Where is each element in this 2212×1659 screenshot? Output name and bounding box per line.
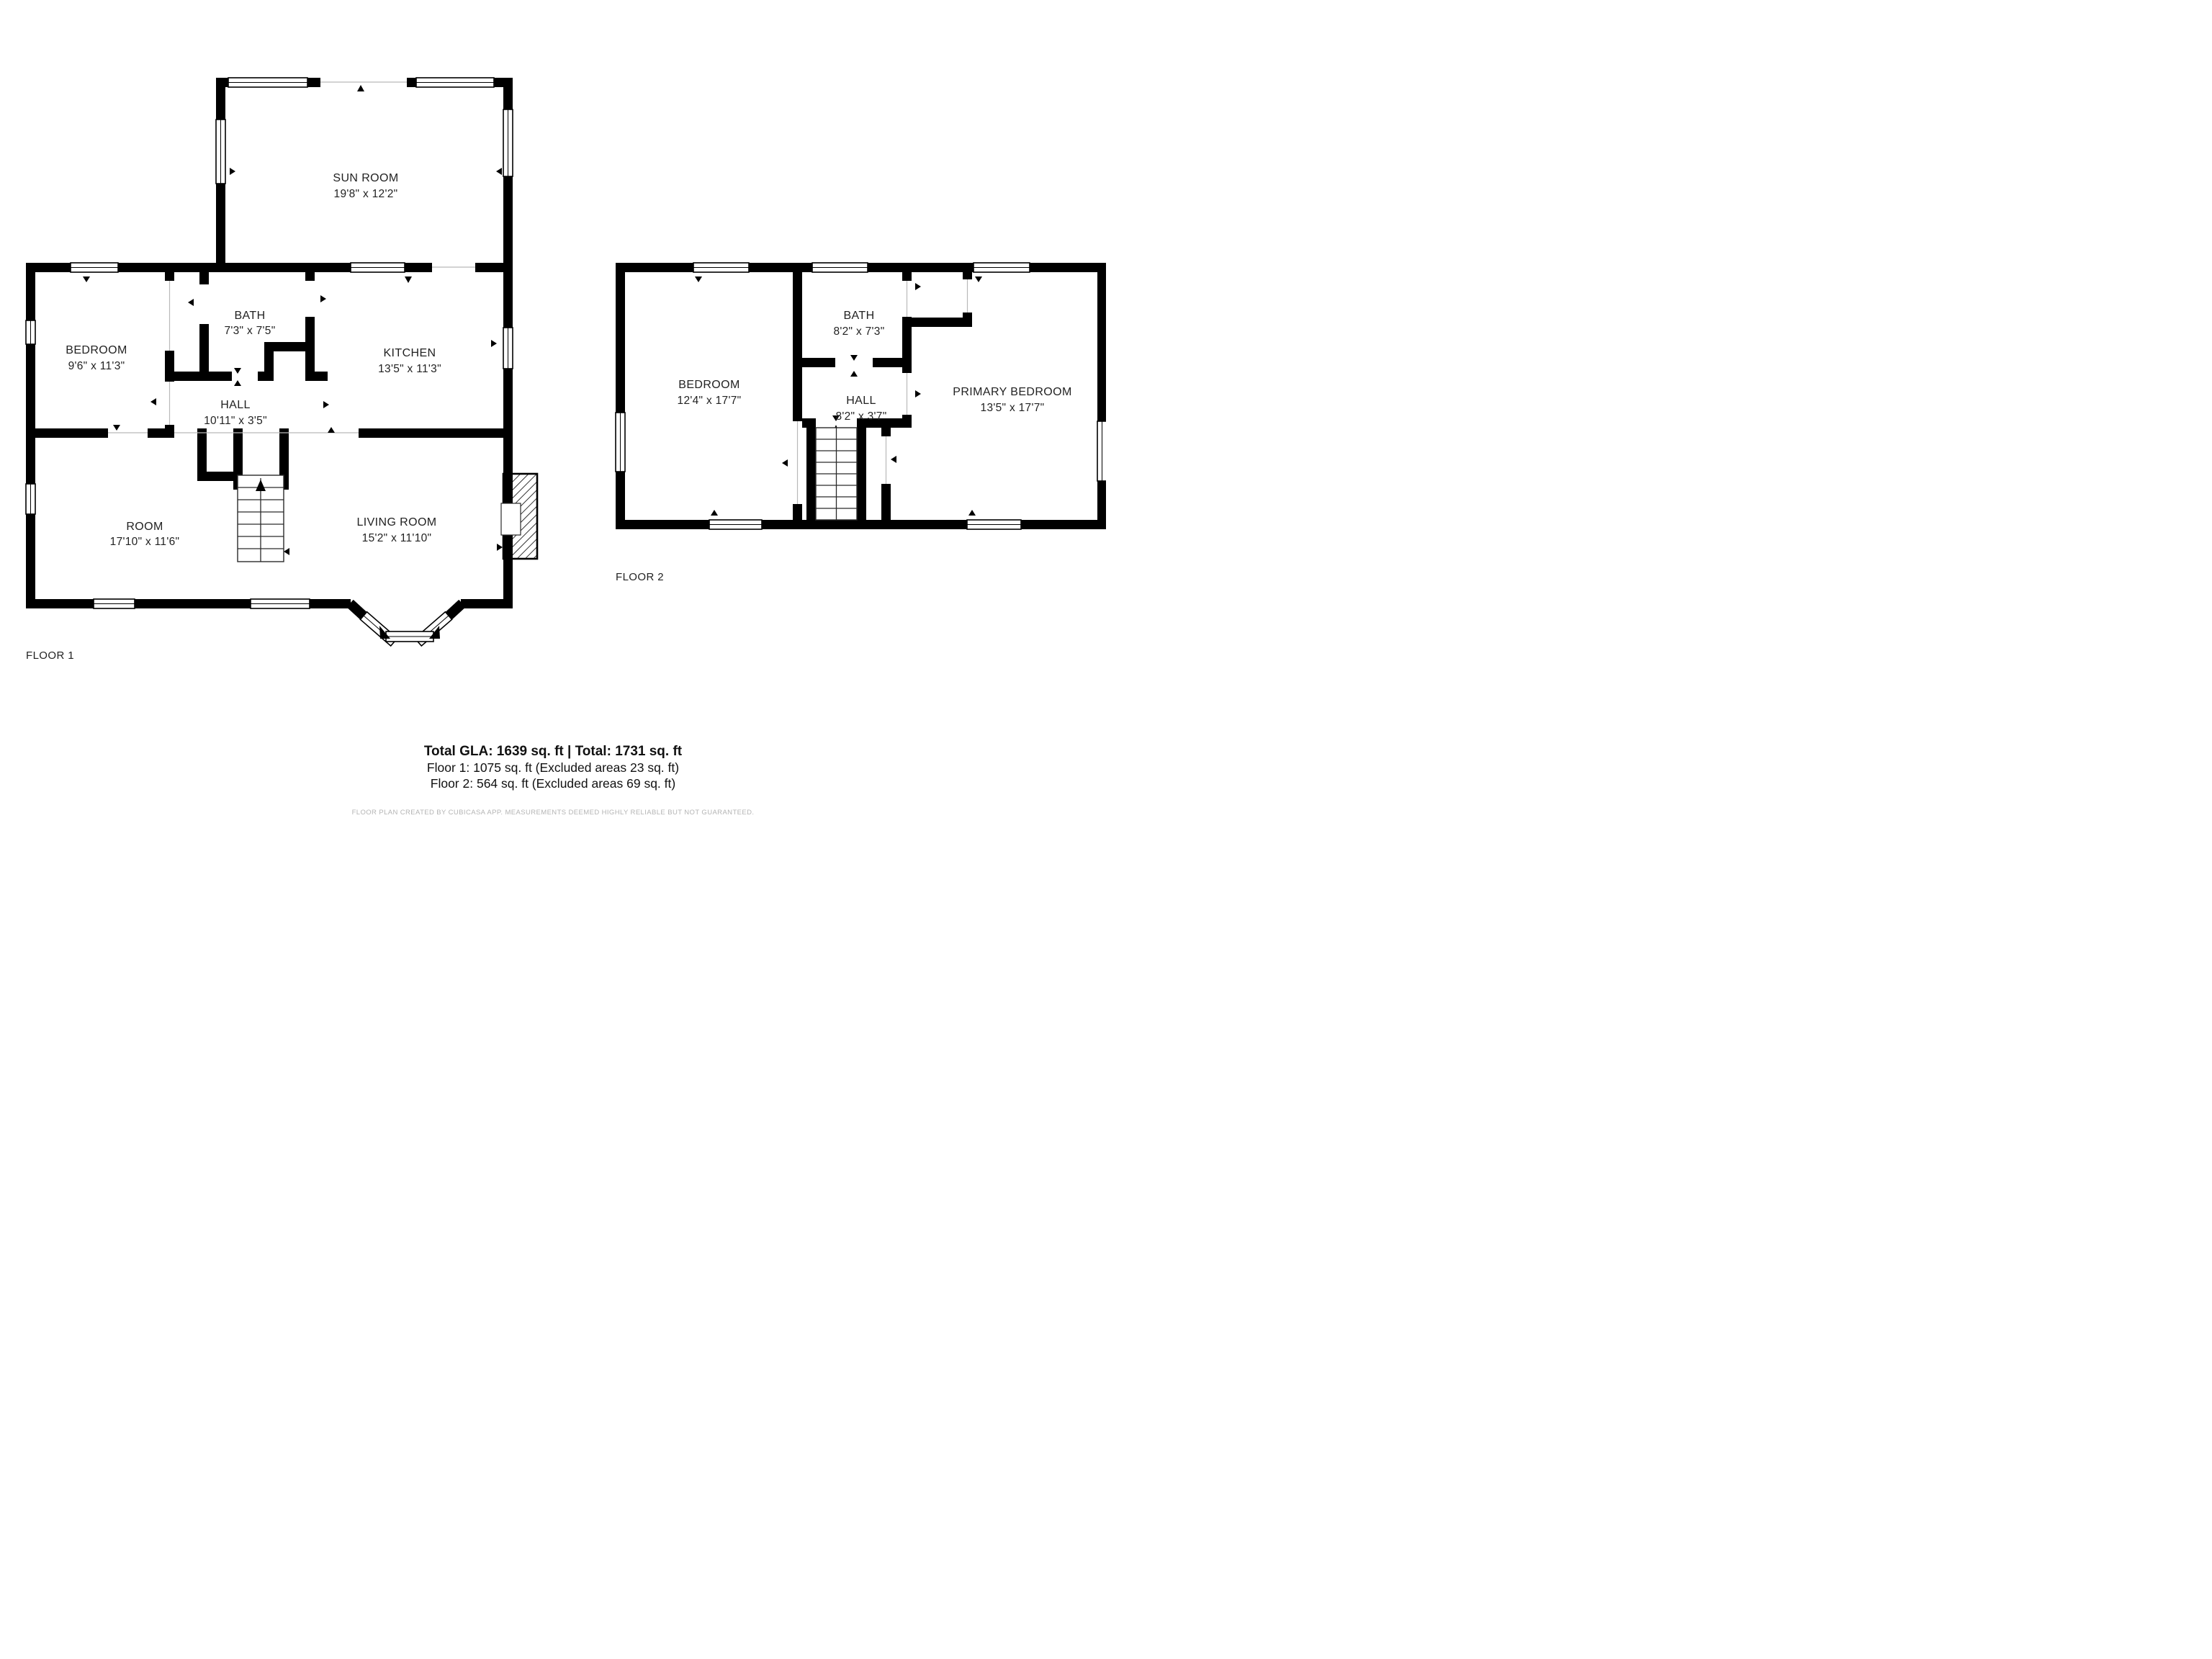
sunroom-label: SUN ROOM	[333, 172, 398, 184]
cubicasa-credit: FLOOR PLAN CREATED BY CUBICASA APP. MEAS…	[0, 809, 1106, 817]
floor2-sqft-line: Floor 2: 564 sq. ft (Excluded areas 69 s…	[0, 775, 1106, 791]
floor1-door-arrows	[83, 85, 503, 555]
bath-label: BATH	[234, 310, 265, 322]
window	[974, 263, 1030, 272]
kitchen-dims: 13'5" x 11'3"	[378, 363, 441, 375]
window	[26, 484, 35, 514]
window	[503, 328, 513, 369]
floorplan-svg: SUN ROOM 19'8" x 12'2" BEDROOM 9'6" x 11…	[0, 0, 1106, 829]
hall2-dims: 8'2" x 3'7"	[835, 410, 886, 423]
hall-label: HALL	[220, 399, 251, 411]
window	[216, 120, 225, 184]
bath2-label: BATH	[843, 310, 874, 322]
window	[351, 263, 405, 272]
living-label: LIVING ROOM	[356, 516, 436, 529]
floor2-plan: BEDROOM 12'4" x 17'7" BATH 8'2" x 7'3" H…	[616, 263, 1106, 583]
window	[94, 599, 135, 608]
hall2-label: HALL	[846, 395, 876, 407]
window	[503, 109, 513, 176]
bedroom2-dims: 12'4" x 17'7"	[678, 395, 742, 407]
floorplan-page: SUN ROOM 19'8" x 12'2" BEDROOM 9'6" x 11…	[0, 0, 1106, 829]
window	[416, 78, 494, 87]
window	[812, 263, 868, 272]
floor1-labels: SUN ROOM 19'8" x 12'2" BEDROOM 9'6" x 11…	[26, 172, 441, 662]
staircase-floor2	[816, 428, 857, 520]
window	[26, 320, 35, 344]
window	[71, 263, 118, 272]
window	[693, 263, 749, 272]
bedroom-label: BEDROOM	[66, 344, 127, 356]
floor1-plan: SUN ROOM 19'8" x 12'2" BEDROOM 9'6" x 11…	[26, 78, 537, 662]
floor1-openings	[108, 82, 475, 433]
fireplace	[501, 474, 537, 559]
primary-label: PRIMARY BEDROOM	[953, 386, 1071, 398]
window	[1097, 421, 1106, 481]
bay-window	[350, 603, 462, 646]
sunroom-dims: 19'8" x 12'2"	[334, 188, 398, 200]
summary-footer: Total GLA: 1639 sq. ft | Total: 1731 sq.…	[0, 744, 1106, 817]
total-gla-line: Total GLA: 1639 sq. ft | Total: 1731 sq.…	[0, 744, 1106, 760]
window	[709, 520, 762, 529]
kitchen-label: KITCHEN	[383, 347, 436, 359]
primary-dims: 13'5" x 17'7"	[981, 402, 1045, 414]
floor1-sqft-line: Floor 1: 1075 sq. ft (Excluded areas 23 …	[0, 760, 1106, 775]
bedroom2-label: BEDROOM	[678, 379, 739, 391]
window	[251, 599, 310, 608]
window	[228, 78, 307, 87]
floor2-caption: FLOOR 2	[616, 571, 664, 583]
floor1-caption: FLOOR 1	[26, 649, 74, 662]
bath-dims: 7'3" x 7'5"	[224, 325, 275, 337]
staircase-floor1	[238, 475, 284, 562]
room-dims: 17'10" x 11'6"	[110, 536, 180, 548]
bedroom-dims: 9'6" x 11'3"	[68, 360, 125, 372]
hall-dims: 10'11" x 3'5"	[204, 415, 267, 427]
living-dims: 15'2" x 11'10"	[362, 532, 432, 544]
window	[967, 520, 1021, 529]
window	[616, 413, 625, 472]
bath2-dims: 8'2" x 7'3"	[833, 325, 884, 338]
room-label: ROOM	[126, 521, 163, 533]
